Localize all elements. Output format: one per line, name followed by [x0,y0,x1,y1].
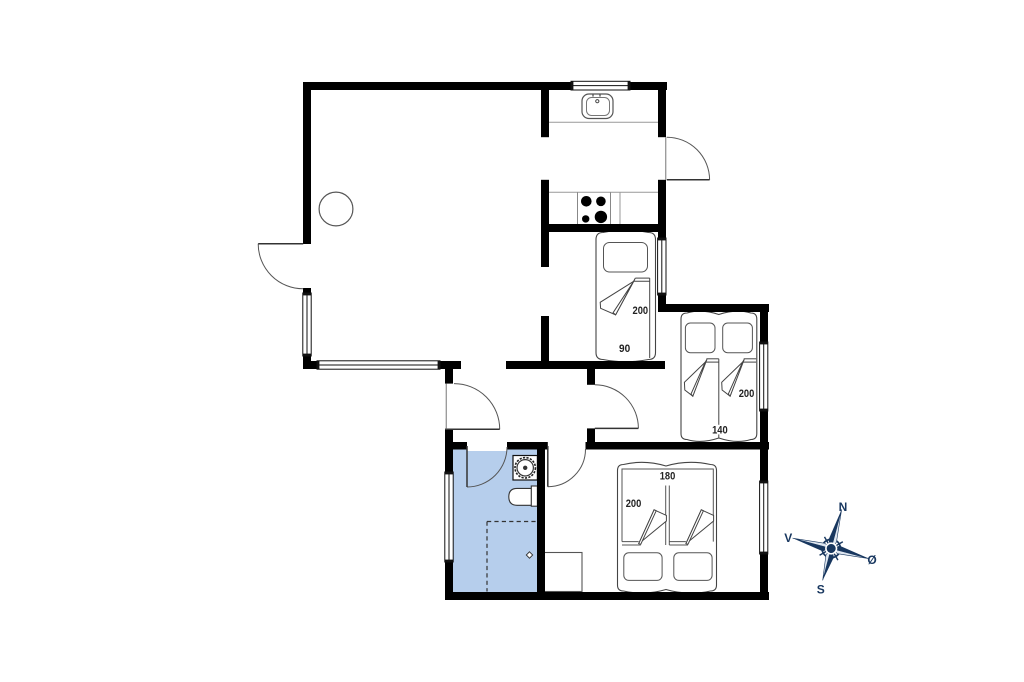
svg-text:200: 200 [626,498,642,510]
svg-text:140: 140 [712,425,728,437]
svg-text:N: N [839,500,848,514]
svg-text:180: 180 [660,471,676,483]
svg-text:90: 90 [619,343,630,355]
svg-text:V: V [784,531,792,545]
svg-text:200: 200 [739,388,755,400]
svg-text:Ø: Ø [867,553,876,567]
svg-text:S: S [817,583,825,597]
svg-text:200: 200 [633,305,649,317]
